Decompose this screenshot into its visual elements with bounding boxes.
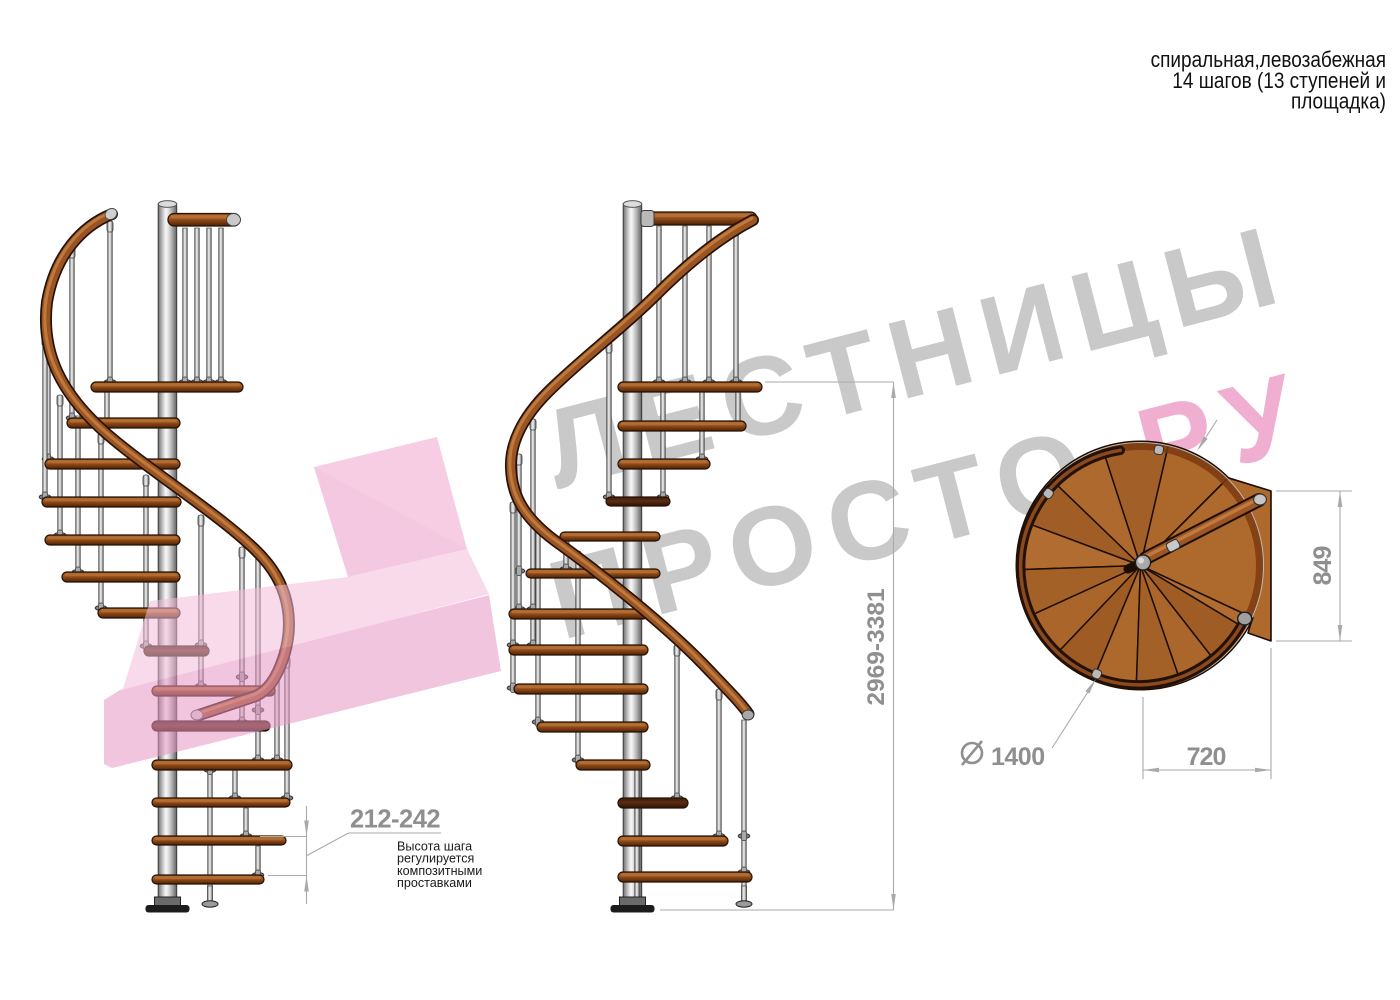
svg-text:849: 849	[1309, 547, 1337, 586]
svg-text:1400: 1400	[991, 743, 1045, 771]
svg-text:212-242: 212-242	[350, 806, 440, 834]
svg-text:Высота шагарегулируетсякомпози: Высота шагарегулируетсякомпозитнымипрост…	[397, 840, 482, 891]
svg-text:720: 720	[1187, 743, 1226, 771]
svg-text:2969-3381: 2969-3381	[863, 588, 890, 705]
svg-text:площадка): площадка)	[1291, 89, 1386, 114]
